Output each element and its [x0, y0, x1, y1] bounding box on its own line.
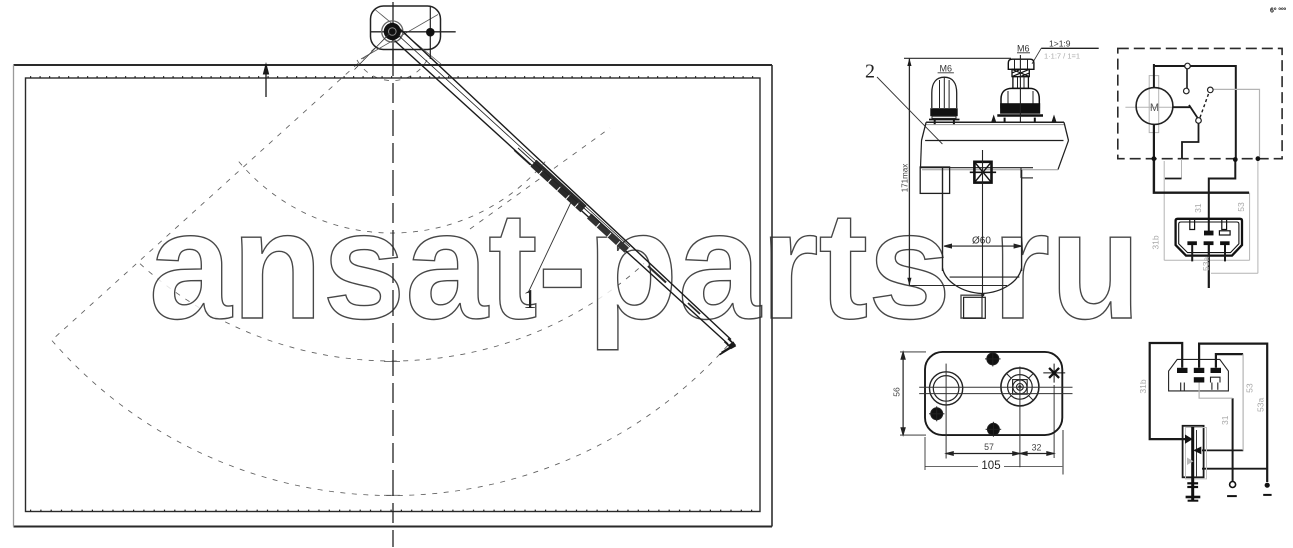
- svg-text:31b: 31b: [1151, 235, 1161, 249]
- svg-text:31b: 31b: [1138, 379, 1148, 393]
- svg-text:105: 105: [981, 460, 1000, 472]
- svg-text:1>1:9: 1>1:9: [1049, 39, 1071, 49]
- svg-text:56: 56: [892, 387, 902, 397]
- svg-text:53a: 53a: [1256, 398, 1266, 412]
- svg-text:32: 32: [1032, 442, 1042, 452]
- svg-text:53a: 53a: [1201, 257, 1211, 271]
- svg-text:2: 2: [865, 61, 875, 83]
- svg-text:M6: M6: [940, 64, 953, 74]
- svg-text:31: 31: [1220, 415, 1230, 425]
- svg-text:57: 57: [984, 442, 994, 452]
- svg-text:1·1:7 / 1=1: 1·1:7 / 1=1: [1044, 52, 1080, 61]
- svg-text:53: 53: [1236, 202, 1246, 212]
- svg-text:171max: 171max: [901, 164, 910, 192]
- svg-text:ansat-parts.ru: ansat-parts.ru: [149, 180, 1141, 351]
- svg-text:31: 31: [1193, 203, 1203, 213]
- svg-text:M: M: [1150, 102, 1159, 114]
- svg-text:53: 53: [1244, 383, 1254, 393]
- svg-text:M6: M6: [1017, 44, 1030, 54]
- svg-text:6º ººº: 6º ººº: [1270, 8, 1287, 15]
- svg-text:1: 1: [523, 284, 537, 314]
- svg-text:Ø60: Ø60: [972, 236, 991, 247]
